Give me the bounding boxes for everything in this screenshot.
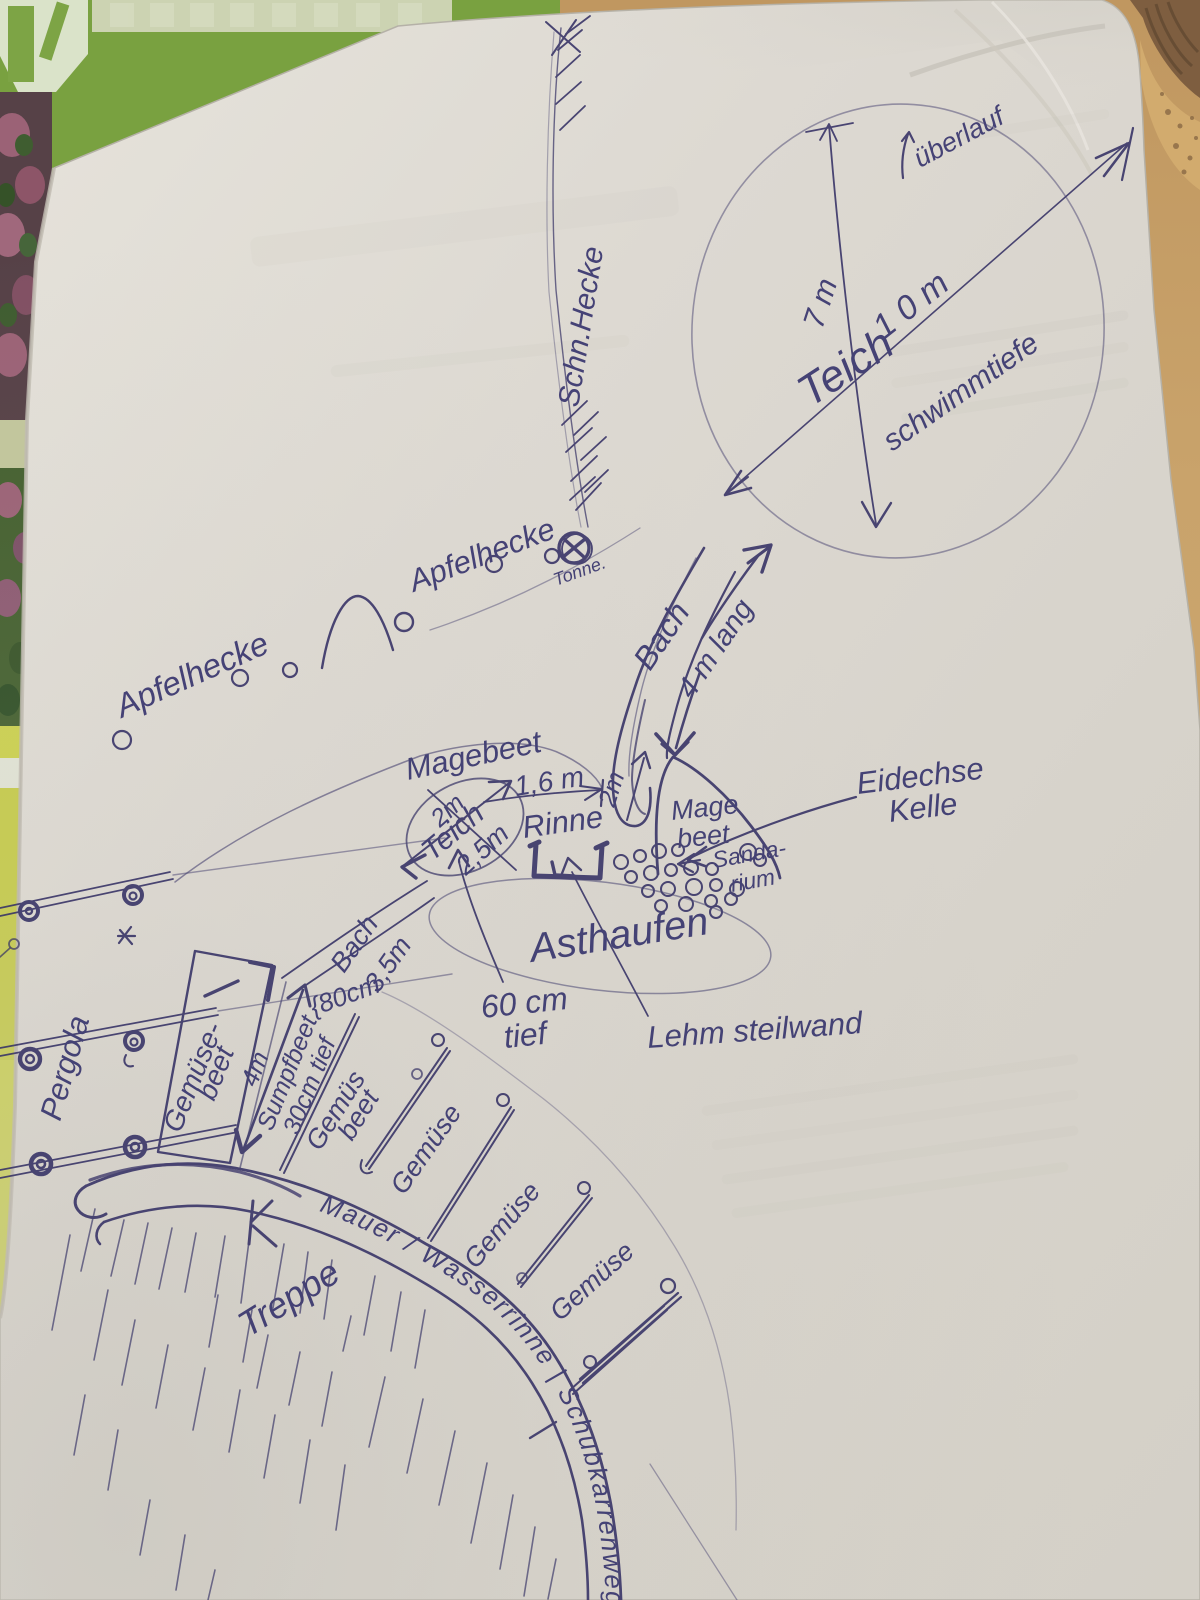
svg-text:tief: tief bbox=[502, 1014, 551, 1055]
